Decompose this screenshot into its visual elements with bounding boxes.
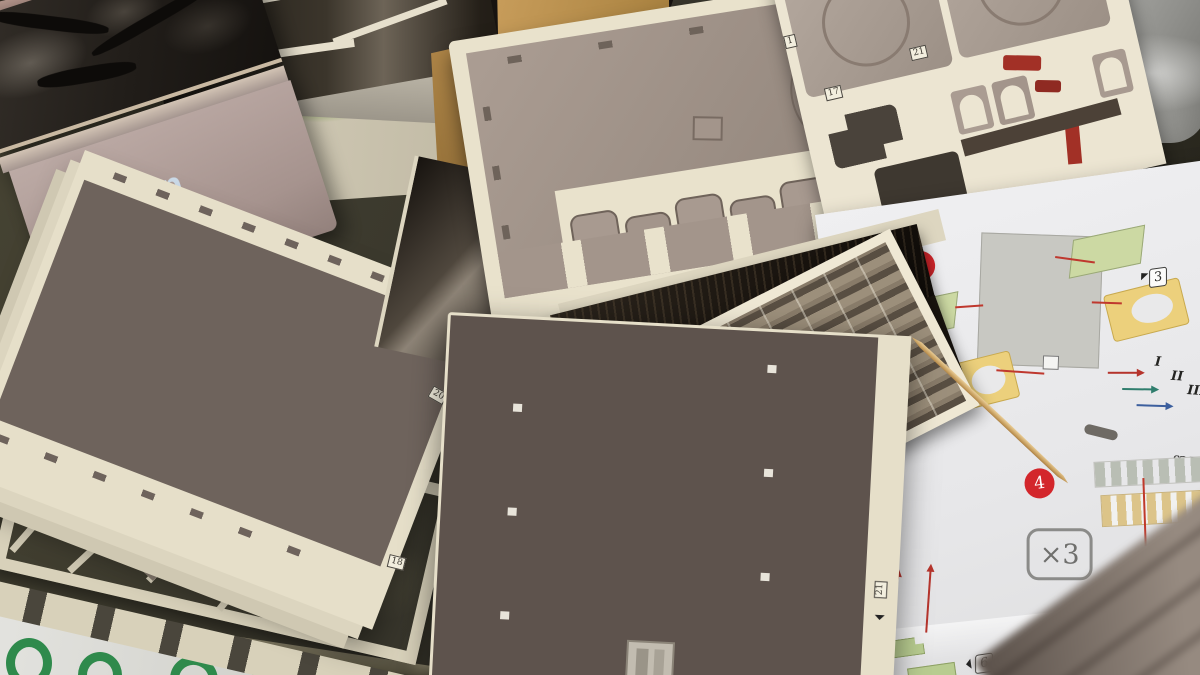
diagram-door (1043, 355, 1059, 370)
callout-arrow (960, 659, 971, 670)
yellow-base-piece (1103, 277, 1190, 342)
roof-pad-circle (813, 0, 919, 75)
arch-cutout (998, 83, 1029, 120)
vent-square (513, 404, 522, 412)
vent-square (760, 573, 769, 581)
artwork-brushstroke (0, 9, 109, 38)
punch-slots (480, 90, 510, 239)
striped-piece-diagram (1093, 456, 1200, 488)
tab-arrow (874, 615, 885, 626)
quantity-multiplier: ×3 (1027, 528, 1093, 580)
roof-pad-piece (781, 0, 954, 99)
entrance-door (624, 640, 675, 675)
circle-cutout (1128, 290, 1175, 328)
artwork-brushstroke (36, 58, 137, 91)
arch-window-piece (1091, 48, 1134, 99)
green-tab-diagram (907, 662, 957, 675)
arch-cutout (957, 92, 988, 129)
small-punch-piece (693, 116, 723, 141)
facade-window-grid (431, 315, 878, 675)
legend-mark: III (1187, 383, 1200, 399)
roof-pad-circle (968, 0, 1074, 34)
roof-pad-piece (934, 0, 1112, 59)
vent-square (500, 611, 509, 619)
arch-window-piece (991, 75, 1036, 126)
legend-arrow-red (1108, 372, 1142, 374)
arch-cutout (1097, 55, 1127, 91)
assembly-arrow-red (925, 567, 932, 633)
piece-number-tag: 17 (824, 85, 844, 102)
photo-model-kit-table: Happy New Year Turkan 20 18 (0, 0, 1200, 675)
piece-number-tag: 21 (874, 580, 888, 598)
part-callout: 3 (1149, 266, 1167, 288)
legend-mark: I (1154, 355, 1161, 370)
legend-arrow-blue (1137, 404, 1171, 407)
door-leaf (634, 648, 648, 675)
facade-piece: 21 (428, 312, 919, 675)
dark-punch-piece (825, 103, 907, 170)
callout-arrow (1134, 266, 1148, 280)
vent-square (507, 507, 516, 515)
red-piece (1003, 55, 1041, 71)
legend-arrow-teal (1122, 388, 1156, 391)
vent-square (764, 469, 773, 477)
door-leaf (652, 649, 664, 675)
green-roof-panel (1069, 225, 1145, 279)
small-card-piece (1083, 423, 1118, 441)
vent-square (767, 365, 776, 373)
step-number-badge: 4 (1023, 466, 1057, 500)
red-piece (1035, 80, 1061, 92)
arch-window-piece (950, 84, 995, 135)
legend-mark: II (1171, 369, 1184, 385)
